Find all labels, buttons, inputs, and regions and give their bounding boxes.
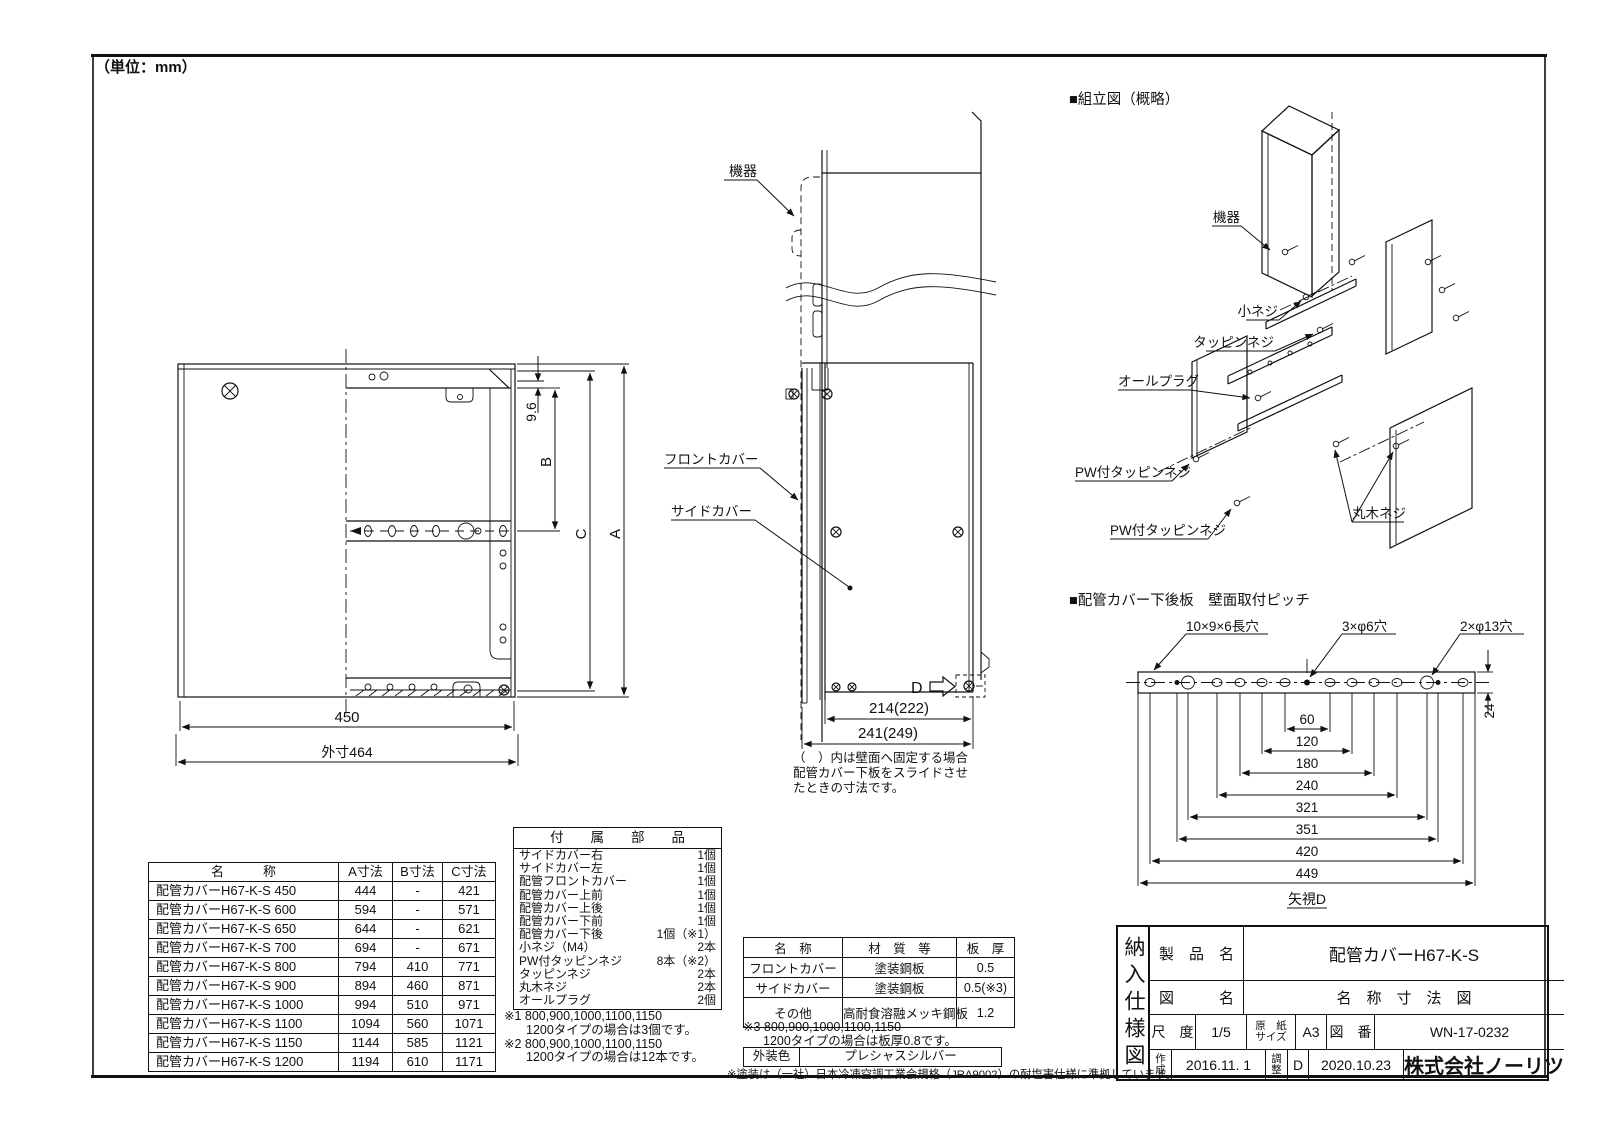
paper-label: 原 紙サイズ bbox=[1247, 1015, 1296, 1049]
list-item: 小ネジ（M4）2本 bbox=[514, 941, 721, 954]
bp-dim-240: 240 bbox=[1296, 778, 1319, 793]
dim-241: 241(249) bbox=[858, 725, 918, 742]
material-table: 名 称 材 質 等 板 厚 フロントカバー塗装鋼板0.5 サイドカバー塗装鋼板0… bbox=[743, 937, 1015, 1028]
list-item: 配管カバー上前1個 bbox=[514, 889, 721, 902]
exterior-color-label: 外装色 bbox=[744, 1048, 800, 1066]
list-item: タッピンネジ2本 bbox=[514, 968, 721, 981]
dim-b: B bbox=[538, 457, 555, 467]
bp-dim-180: 180 bbox=[1296, 756, 1319, 771]
bp-dim-120: 120 bbox=[1296, 734, 1319, 749]
note-line: 1200タイプの場合は板厚0.8です。 bbox=[743, 1035, 957, 1049]
dim-214: 214(222) bbox=[869, 700, 929, 717]
drawing-number: WN-17-0232 bbox=[1375, 1015, 1564, 1049]
title-block: 納入仕様図 製 品 名 配管カバーH67-K-S 図 名 名 称 寸 法 図 尺… bbox=[1116, 925, 1549, 1081]
col-name: 名 称 bbox=[149, 863, 339, 882]
label-front-cover: フロントカバー bbox=[664, 452, 759, 467]
doc-type: 納入仕様図 bbox=[1118, 936, 1148, 1071]
drawing-sheet: 9.6 B C A 450 外寸464 bbox=[0, 0, 1600, 1131]
paper-size: A3 bbox=[1296, 1015, 1327, 1049]
table-row: サイドカバー塗装鋼板0.5(※3) bbox=[744, 978, 1015, 998]
accessories-table: 付 属 部 品 サイドカバー右1個 サイドカバー左1個 配管フロントカバー1個 … bbox=[513, 827, 722, 1010]
table-row: 配管カバーH67-K-S 650644-621 bbox=[149, 920, 496, 939]
table-row: 配管カバーH67-K-S 450444-421 bbox=[149, 882, 496, 901]
scale-value: 1/5 bbox=[1196, 1015, 1247, 1049]
material-header: 名 称 材 質 等 板 厚 bbox=[744, 938, 1015, 958]
assembly-drawing: ■組立図（概略） 機器 bbox=[1069, 91, 1472, 548]
view-d-label: 矢視D bbox=[1288, 891, 1326, 907]
asm-label-tapping: タッピンネジ bbox=[1193, 335, 1274, 350]
table-row: 配管カバーH67-K-S 800794410771 bbox=[149, 958, 496, 977]
unit-note: （単位：mm） bbox=[95, 56, 197, 77]
accessories-title: 付 属 部 品 bbox=[514, 828, 721, 849]
label-side-cover: サイドカバー bbox=[671, 504, 752, 519]
list-item: 配管フロントカバー1個 bbox=[514, 875, 721, 888]
created-label: 作成 bbox=[1150, 1050, 1172, 1079]
asm-label-pw1: PW付タッピンネジ bbox=[1075, 465, 1191, 480]
list-item: PW付タッピンネジ8本（※2） bbox=[514, 955, 721, 968]
table-row: 配管カバーH67-K-S 1000994510971 bbox=[149, 996, 496, 1015]
exterior-color-value: プレシャスシルバー bbox=[800, 1048, 1001, 1066]
label-device: 機器 bbox=[729, 163, 757, 179]
adjusted-date: 2020.10.23 bbox=[1309, 1050, 1404, 1079]
revision-letter: D bbox=[1288, 1050, 1309, 1079]
size-table: 名 称 A寸法 B寸法 C寸法 配管カバーH67-K-S 450444-421 … bbox=[148, 862, 496, 1072]
bp-dim-449: 449 bbox=[1296, 866, 1319, 881]
side-note-3: たときの寸法です。 bbox=[793, 781, 904, 795]
dim-450: 450 bbox=[334, 709, 359, 726]
bp-dim-420: 420 bbox=[1296, 844, 1319, 859]
product-name: 配管カバーH67-K-S bbox=[1244, 927, 1564, 980]
col-a: A寸法 bbox=[339, 863, 393, 882]
asm-label-plug: オールプラグ bbox=[1118, 374, 1199, 389]
asm-label-small-screw: 小ネジ bbox=[1238, 304, 1279, 319]
drawing-no-label: 図 番 bbox=[1327, 1015, 1375, 1049]
side-note-2: 配管カバー下板をスライドさせ bbox=[793, 765, 968, 780]
dim-outer-464: 外寸464 bbox=[321, 744, 373, 760]
col-c: C寸法 bbox=[443, 863, 496, 882]
table-row: 配管カバーH67-K-S 120011946101171 bbox=[149, 1053, 496, 1072]
asm-label-device: 機器 bbox=[1213, 210, 1241, 225]
created-date: 2016.11. 1 bbox=[1172, 1050, 1266, 1079]
asm-label-pw2: PW付タッピンネジ bbox=[1110, 523, 1226, 538]
view-d-letter: D bbox=[911, 680, 923, 697]
col-b: B寸法 bbox=[393, 863, 443, 882]
note-line: ※3 800,900,1000,1100,1150 bbox=[743, 1021, 957, 1035]
dim-c: C bbox=[573, 528, 590, 539]
bp-dim-60: 60 bbox=[1299, 712, 1314, 727]
adjusted-label: 調整 bbox=[1266, 1050, 1288, 1079]
paint-note: ※塗装は（一社）日本冷凍空調工業会規格（JRA9002）の耐塩害仕様に準拠してい… bbox=[727, 1066, 1177, 1082]
product-label: 製 品 名 bbox=[1150, 927, 1244, 980]
bp-dim-321: 321 bbox=[1296, 800, 1319, 815]
table-row: 配管カバーH67-K-S 700694-671 bbox=[149, 939, 496, 958]
back-plate-drawing: ■配管カバー下後板 壁面取付ピッチ 10×9×6長穴 3×φ6穴 2×φ13穴 bbox=[1069, 591, 1524, 908]
table-row: 配管カバーH67-K-S 900894460871 bbox=[149, 977, 496, 996]
table-row: 配管カバーH67-K-S 115011445851121 bbox=[149, 1034, 496, 1053]
side-view-drawing: D 214(222) 241(249) （ ）内は壁面へ固定する場合 配管カバー… bbox=[664, 112, 996, 795]
back-plate-title: ■配管カバー下後板 壁面取付ピッチ bbox=[1069, 591, 1310, 609]
dim-9-6: 9.6 bbox=[523, 402, 539, 422]
accessories-notes: ※1 800,900,1000,1100,1150 1200タイプの場合は3個で… bbox=[504, 1010, 704, 1065]
doc-type-cell: 納入仕様図 bbox=[1118, 927, 1150, 1079]
view-d-arrow-icon bbox=[930, 677, 955, 696]
material-notes: ※3 800,900,1000,1100,1150 1200タイプの場合は板厚0… bbox=[743, 1021, 957, 1048]
scale-label: 尺 度 bbox=[1150, 1015, 1196, 1049]
dim-24: 24 bbox=[1482, 703, 1497, 719]
size-table-header: 名 称 A寸法 B寸法 C寸法 bbox=[149, 863, 496, 882]
table-row: 配管カバーH67-K-S 600594-571 bbox=[149, 901, 496, 920]
callout-slot: 10×9×6長穴 bbox=[1186, 619, 1259, 634]
note-line: 1200タイプの場合は12本です。 bbox=[504, 1051, 704, 1065]
side-note-1: （ ）内は壁面へ固定する場合 bbox=[793, 750, 969, 765]
bp-dim-351: 351 bbox=[1296, 822, 1319, 837]
dim-a: A bbox=[607, 529, 624, 539]
drawing-label: 図 名 bbox=[1150, 981, 1244, 1014]
callout-large: 2×φ13穴 bbox=[1460, 619, 1513, 634]
list-item: 配管カバー上後1個 bbox=[514, 902, 721, 915]
assembly-title: ■組立図（概略） bbox=[1069, 91, 1179, 108]
front-view-drawing: 9.6 B C A 450 外寸464 bbox=[176, 349, 629, 766]
drawing-name: 名 称 寸 法 図 bbox=[1244, 981, 1564, 1014]
table-row: フロントカバー塗装鋼板0.5 bbox=[744, 958, 1015, 978]
callout-center: 3×φ6穴 bbox=[1342, 619, 1387, 634]
company-logo: 株式会社ノーリツ bbox=[1404, 1050, 1564, 1079]
note-line: ※1 800,900,1000,1100,1150 bbox=[504, 1010, 704, 1024]
exterior-color-row: 外装色 プレシャスシルバー bbox=[743, 1047, 1002, 1067]
table-row: 配管カバーH67-K-S 110010945601071 bbox=[149, 1015, 496, 1034]
list-item: オールプラグ2個 bbox=[514, 994, 721, 1007]
note-line: 1200タイプの場合は3個です。 bbox=[504, 1024, 704, 1038]
